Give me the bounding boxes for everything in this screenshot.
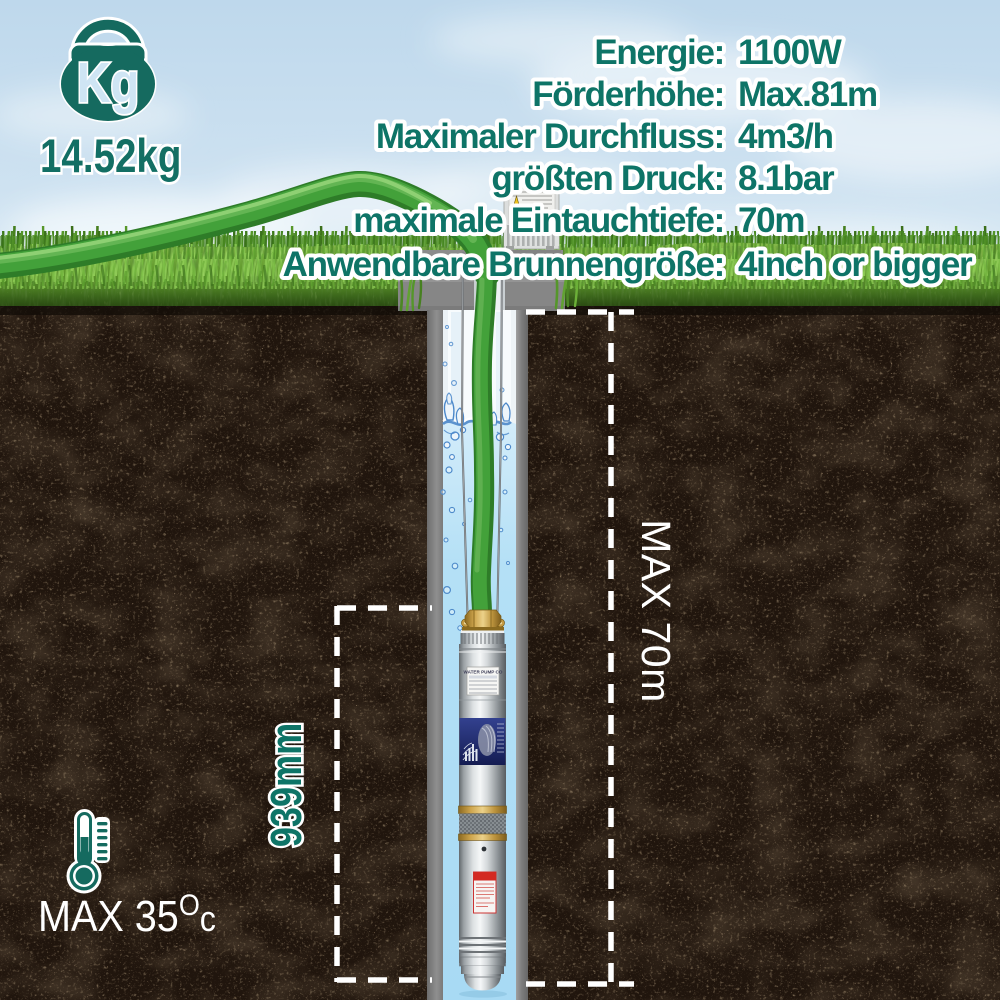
svg-text:939mm: 939mm [262,723,311,847]
svg-text:Kg: Kg [77,52,139,115]
svg-text:größten Druck:: größten Druck: [491,159,724,198]
svg-text:Förderhöhe:: Förderhöhe: [532,75,724,114]
svg-text:14.52kg: 14.52kg [40,130,181,182]
svg-text:Max.81m: Max.81m [738,75,877,114]
svg-text:maximale Eintauchtiefe:: maximale Eintauchtiefe: [353,201,724,240]
svg-text:Anwendbare Brunnengröße:: Anwendbare Brunnengröße: [283,245,724,284]
svg-text:4inch or bigger: 4inch or bigger [738,245,973,284]
svg-text:Energie:: Energie: [594,33,724,72]
svg-text:8.1bar: 8.1bar [738,159,835,198]
svg-text:70m: 70m [738,201,804,240]
svg-text:4m3/h: 4m3/h [738,117,833,156]
svg-text:MAX 70m: MAX 70m [633,519,679,703]
svg-text:Maximaler Durchfluss:: Maximaler Durchfluss: [376,117,724,156]
svg-text:1100W: 1100W [738,33,842,72]
svg-text:WATER PUMP CO: WATER PUMP CO [464,670,503,675]
